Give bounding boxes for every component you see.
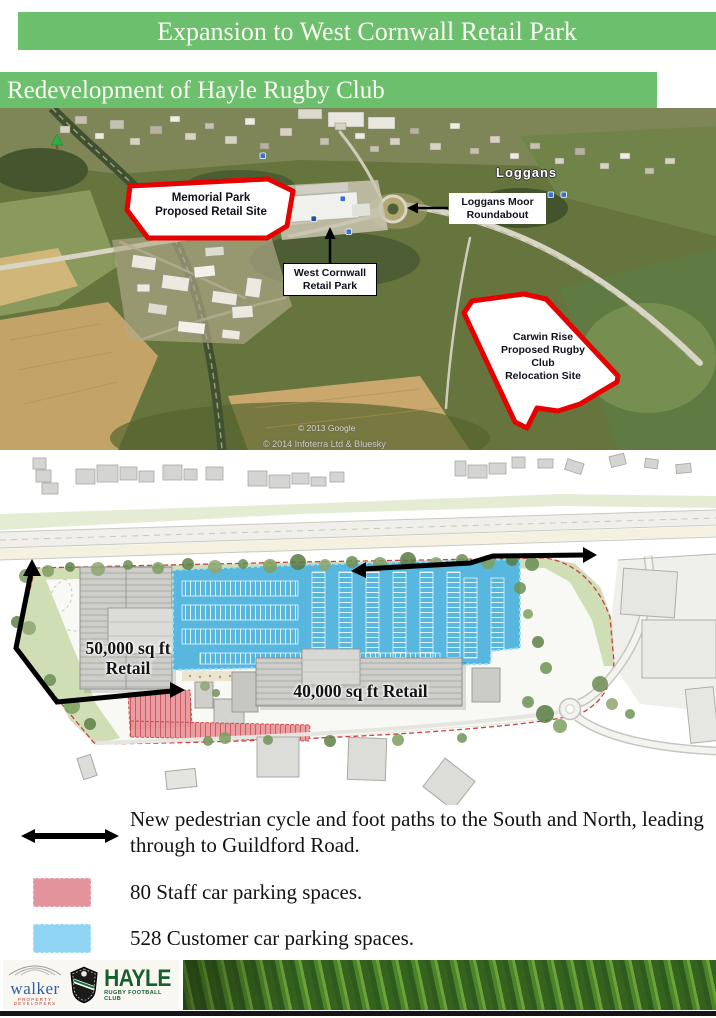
- legend-staff-text: 80 Staff car parking spaces.: [130, 879, 362, 905]
- site-plan-drawing: 50,000 sq ft Retail 40,000 sq ft Retail: [0, 452, 716, 805]
- site-plan-art: [0, 452, 716, 805]
- carwin-rise-label: Carwin Rise Proposed Rugby Club Relocati…: [487, 331, 599, 383]
- loggans-place-label: Loggans: [496, 165, 557, 180]
- page-title: Expansion to West Cornwall Retail Park: [18, 12, 716, 50]
- path-arrow-symbol: [20, 827, 120, 845]
- retail-50k-label: 50,000 sq ft Retail: [80, 638, 176, 678]
- bottom-border-bar: [0, 1011, 716, 1016]
- page-subtitle: Redevelopment of Hayle Rugby Club: [0, 72, 657, 108]
- legend-paths-text: New pedestrian cycle and foot paths to t…: [130, 806, 716, 858]
- memorial-park-label: Memorial Park Proposed Retail Site: [138, 192, 284, 219]
- industrial-estate-buildings: [112, 226, 292, 344]
- walker-logo: walker PROPERTY DEVELOPERS: [6, 964, 64, 1007]
- google-copyright: © 2013 Google: [298, 423, 355, 433]
- aerial-photo: Memorial Park Proposed Retail Site Logga…: [0, 108, 716, 450]
- hayle-logo: HAYLE RUGBY FOOTBALL CLUB: [104, 968, 176, 1002]
- document-page: Expansion to West Cornwall Retail Park R…: [0, 0, 716, 1018]
- grass-photo-strip: [183, 960, 716, 1010]
- hayle-tagline: RUGBY FOOTBALL CLUB: [104, 991, 176, 1002]
- hayle-name: HAYLE: [104, 966, 176, 990]
- hayle-crest-icon: [69, 965, 99, 1005]
- walker-arc-icon: [7, 964, 63, 976]
- west-cornwall-label: West Cornwall Retail Park: [283, 263, 377, 296]
- staff-parking-swatch: [33, 878, 91, 907]
- walker-name: walker: [6, 980, 64, 997]
- walker-tagline: PROPERTY DEVELOPERS: [6, 998, 64, 1007]
- retail-40k-label: 40,000 sq ft Retail: [288, 681, 433, 701]
- legend-customer-text: 528 Customer car parking spaces.: [130, 925, 414, 951]
- footer-logo-panel: walker PROPERTY DEVELOPERS HAYLE RUGBY F…: [3, 960, 179, 1010]
- loggans-moor-label: Loggans Moor Roundabout: [449, 193, 546, 224]
- infoterra-copyright: © 2014 Infoterra Ltd & Bluesky: [263, 439, 386, 449]
- customer-parking-swatch: [33, 924, 91, 953]
